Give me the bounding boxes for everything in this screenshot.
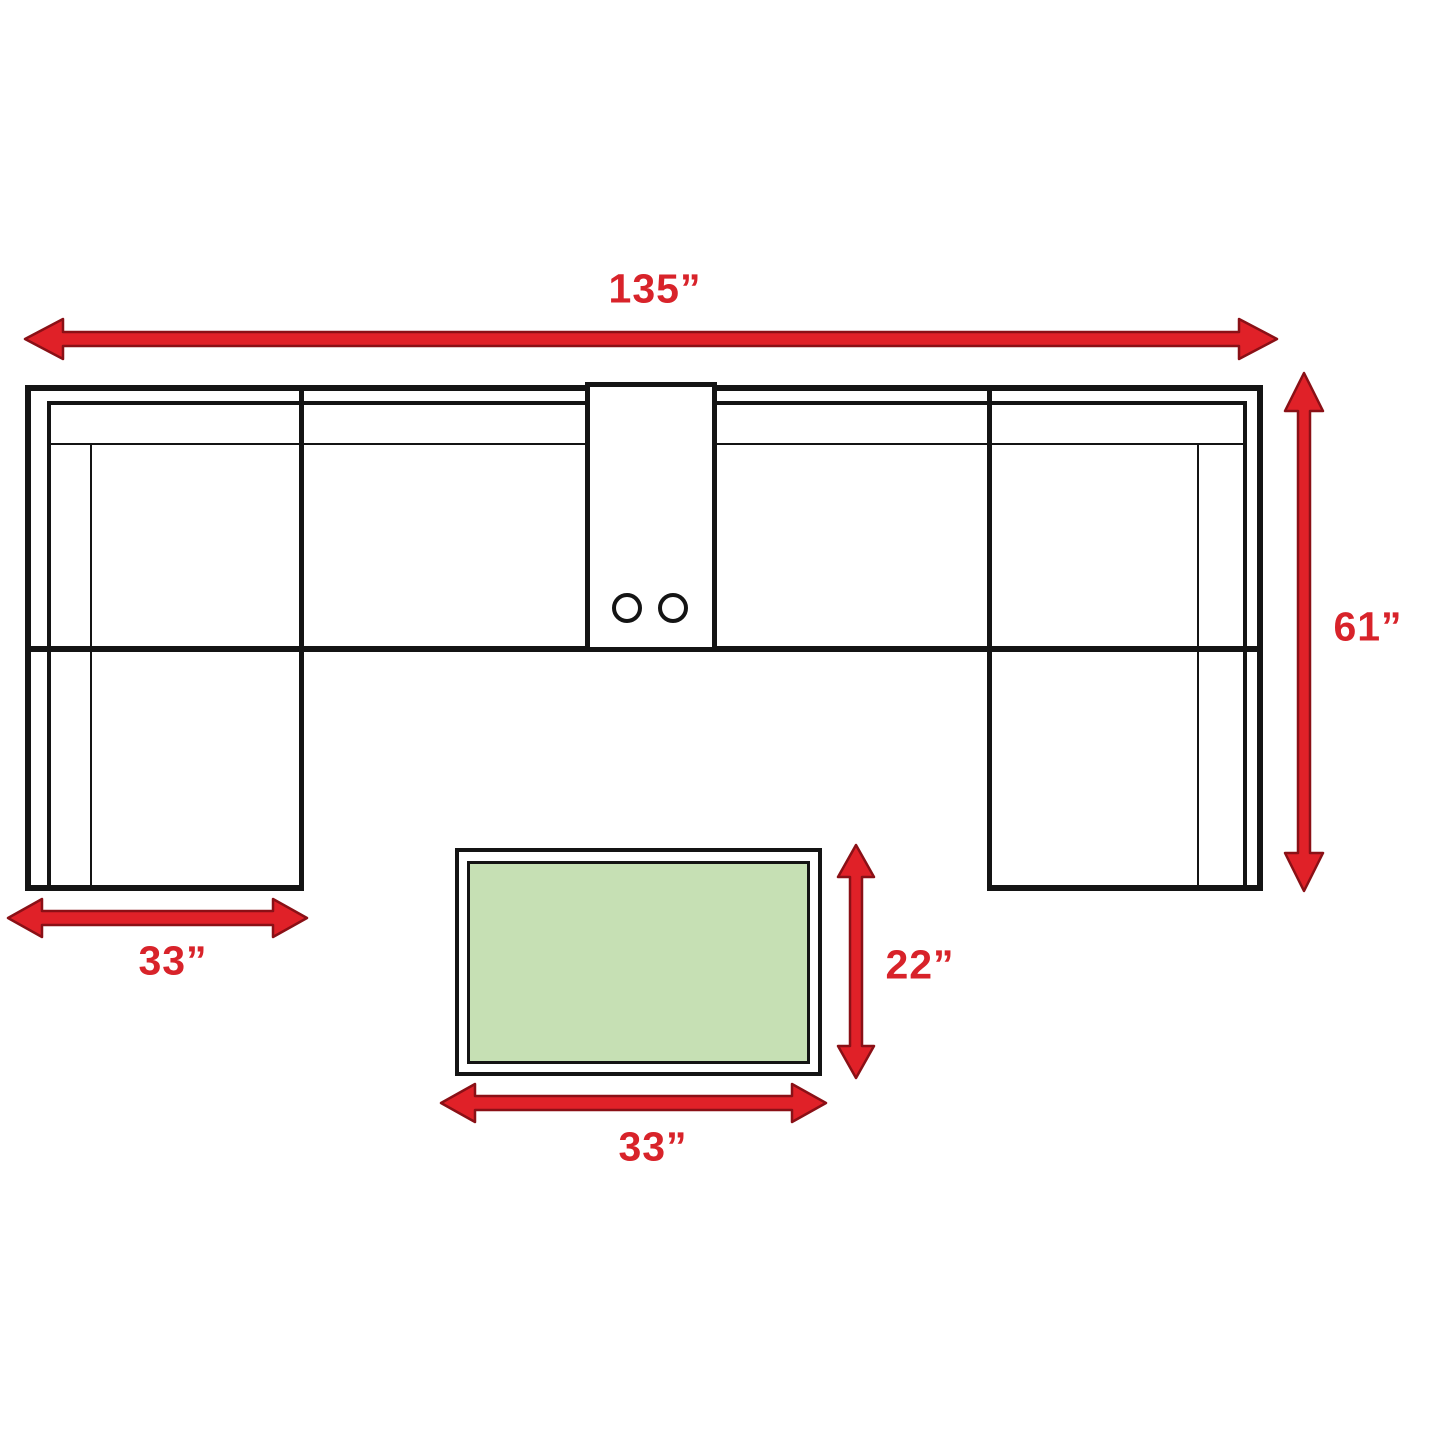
chaise-width-arrow <box>8 899 307 937</box>
table-depth-label: 22” <box>885 942 954 989</box>
sofa-depth-label: 61” <box>1333 604 1402 651</box>
table-depth-arrow <box>838 845 874 1078</box>
back-cushion-line-right <box>717 443 1243 445</box>
table-width-label: 33” <box>618 1124 687 1171</box>
left-arm-cushion-line <box>90 443 92 891</box>
sofa-outer-left-edge <box>25 385 31 891</box>
back-inner-line-left <box>47 401 585 405</box>
dimension-diagram: 135” 61” 33” 22” 33” <box>0 0 1445 1445</box>
sofa-width-label: 135” <box>609 266 702 313</box>
dimension-arrows <box>0 0 1445 1445</box>
left-chaise-bottom-edge <box>25 885 304 891</box>
coffee-table <box>455 848 822 1076</box>
back-inner-line-right <box>717 401 1247 405</box>
back-cushion-line-left <box>51 443 585 445</box>
right-arm-inner-line <box>1243 401 1247 891</box>
center-console <box>585 382 717 652</box>
sofa-width-arrow <box>25 319 1277 359</box>
sofa-outer-right-edge <box>1257 385 1263 891</box>
sofa-depth-arrow <box>1285 373 1323 891</box>
left-arm-inner-line <box>47 401 51 891</box>
right-arm-cushion-line <box>1197 443 1199 891</box>
left-section-divider <box>299 385 304 891</box>
right-section-divider <box>987 385 992 891</box>
cup-holder-right-icon <box>658 593 688 623</box>
table-width-arrow <box>441 1084 826 1122</box>
cup-holder-left-icon <box>612 593 642 623</box>
right-chaise-bottom-edge <box>987 885 1263 891</box>
chaise-width-label: 33” <box>138 938 207 985</box>
coffee-table-top <box>467 861 810 1064</box>
